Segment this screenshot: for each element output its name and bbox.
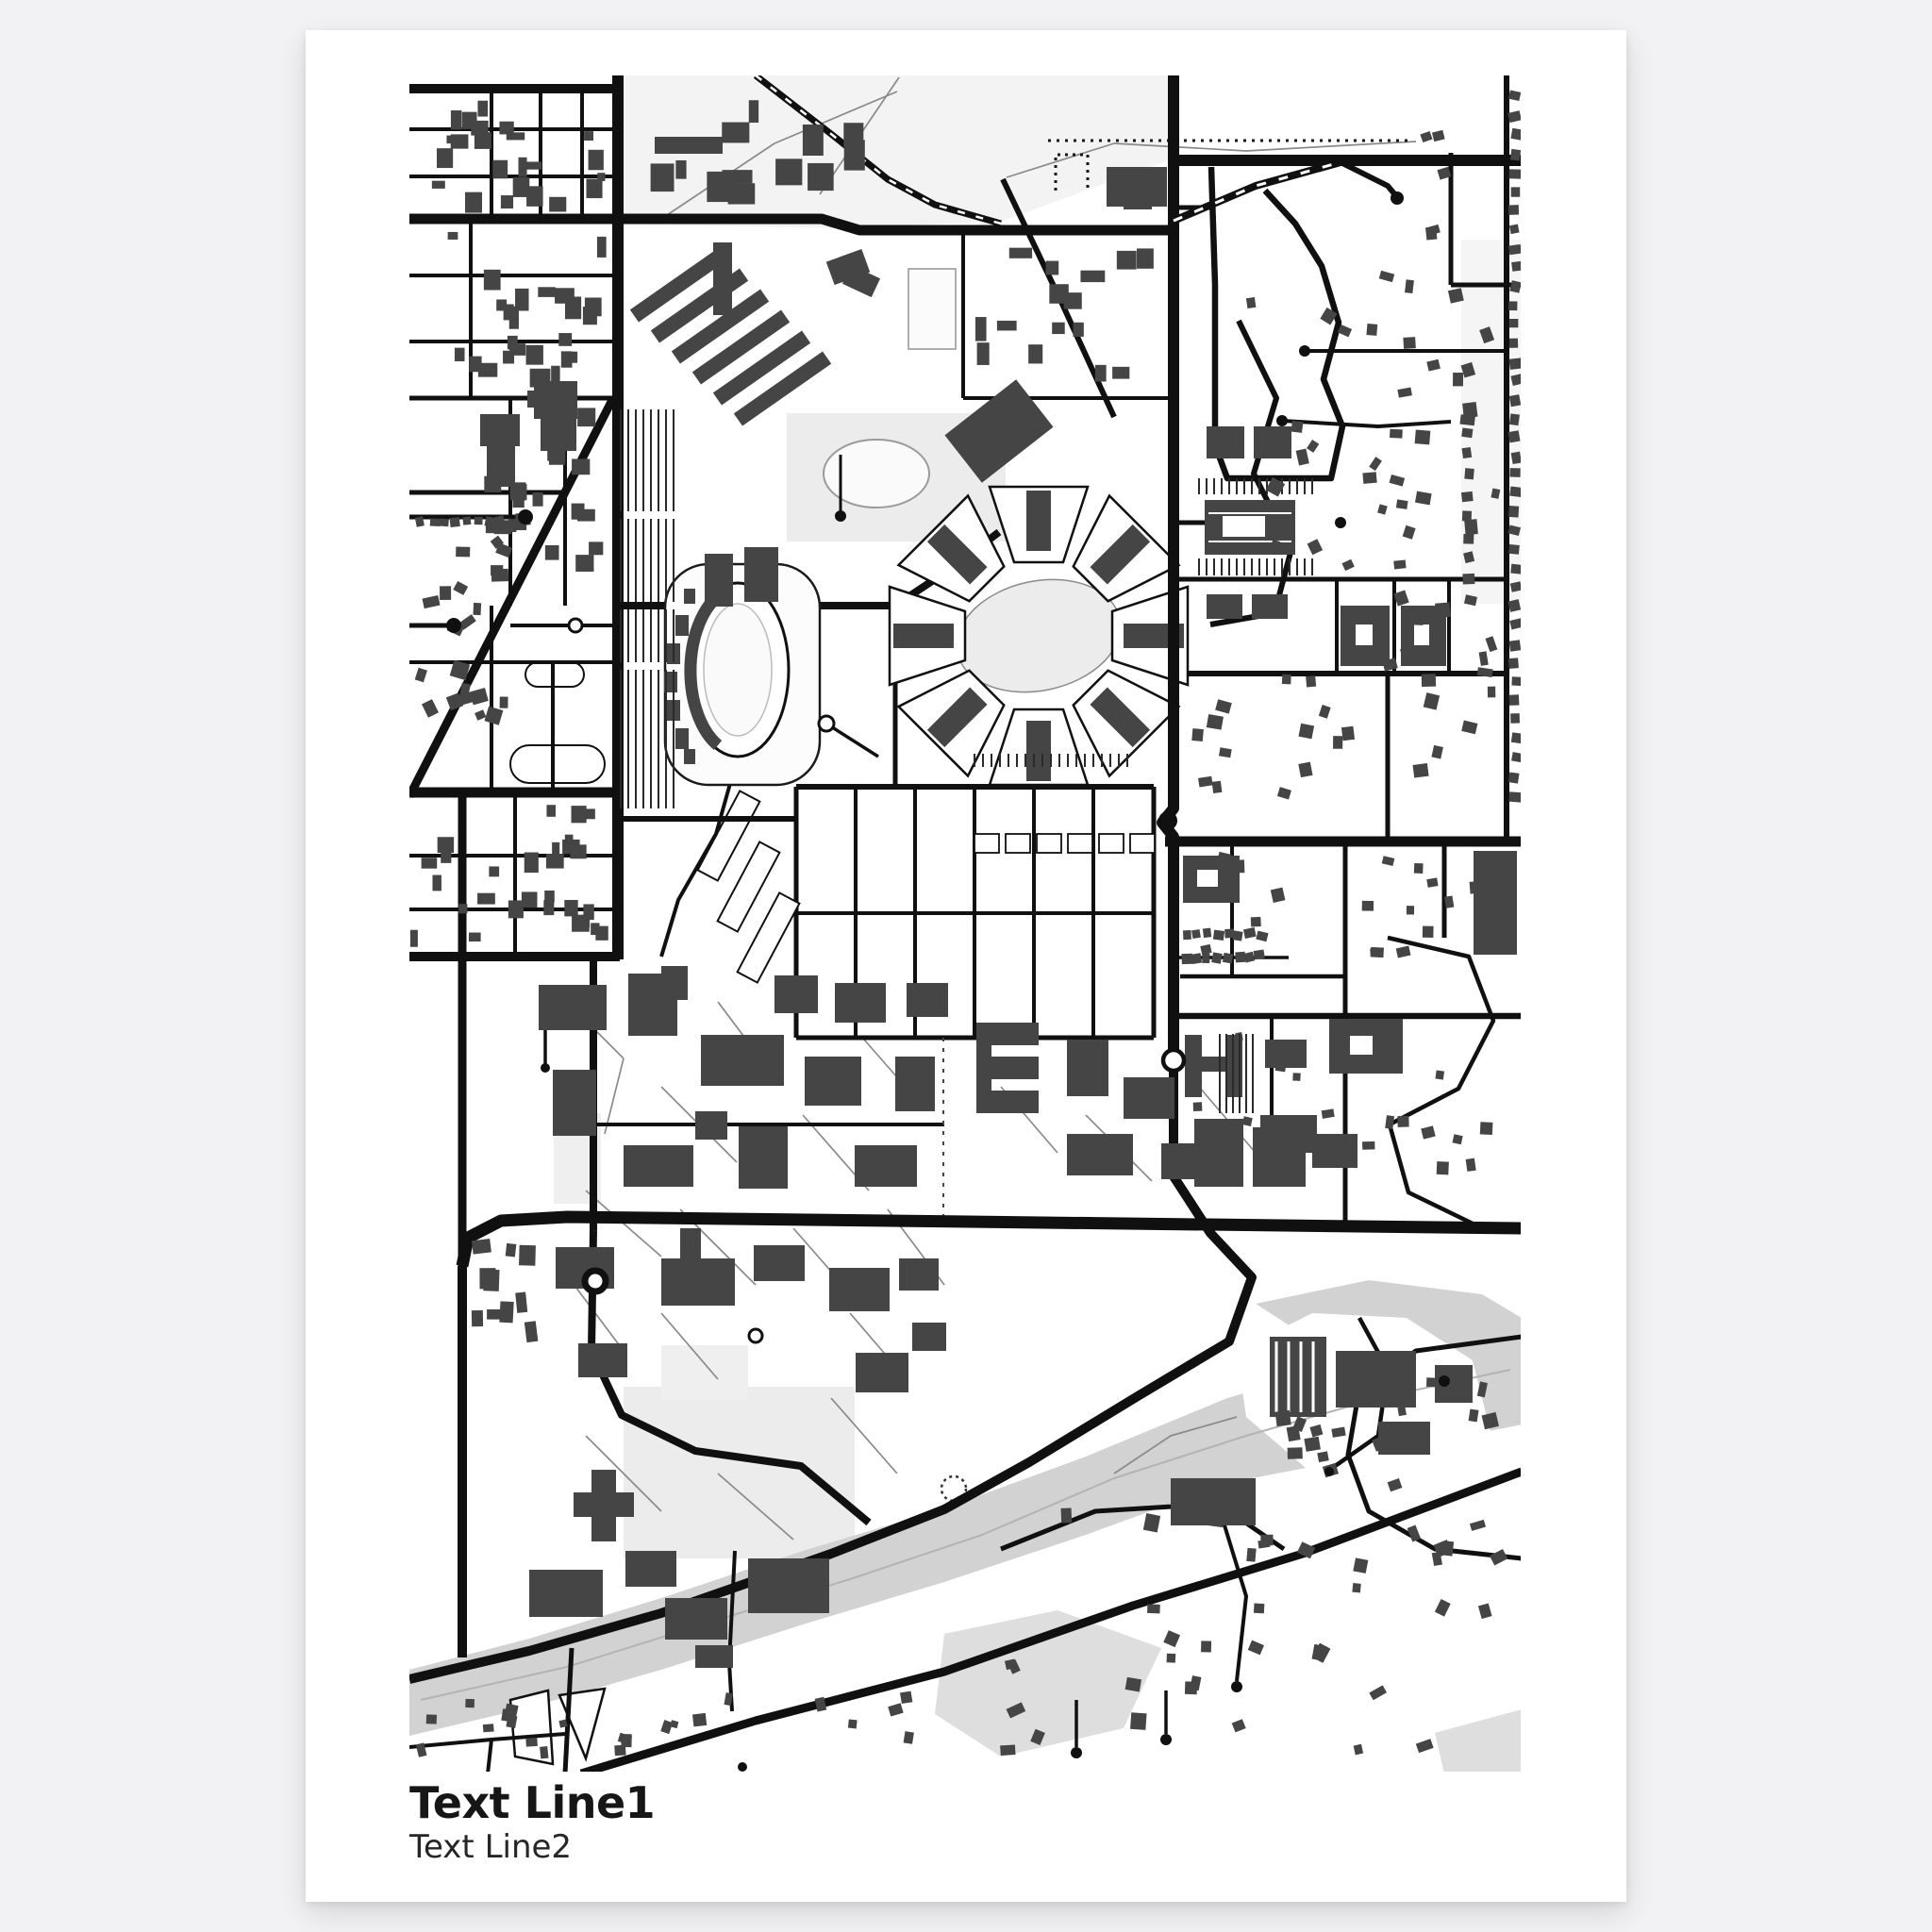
caption-line-2: Text Line2 (409, 1828, 1523, 1867)
map-print (409, 75, 1521, 1772)
caption: Text Line1 Text Line2 (409, 1778, 1523, 1867)
caption-line-1: Text Line1 (409, 1778, 1523, 1828)
poster: Text Line1 Text Line2 (306, 30, 1626, 1902)
city-map-graphic (409, 75, 1521, 1772)
page-background: { "background_color": "#f2f2f4", "poster… (0, 0, 1932, 1932)
